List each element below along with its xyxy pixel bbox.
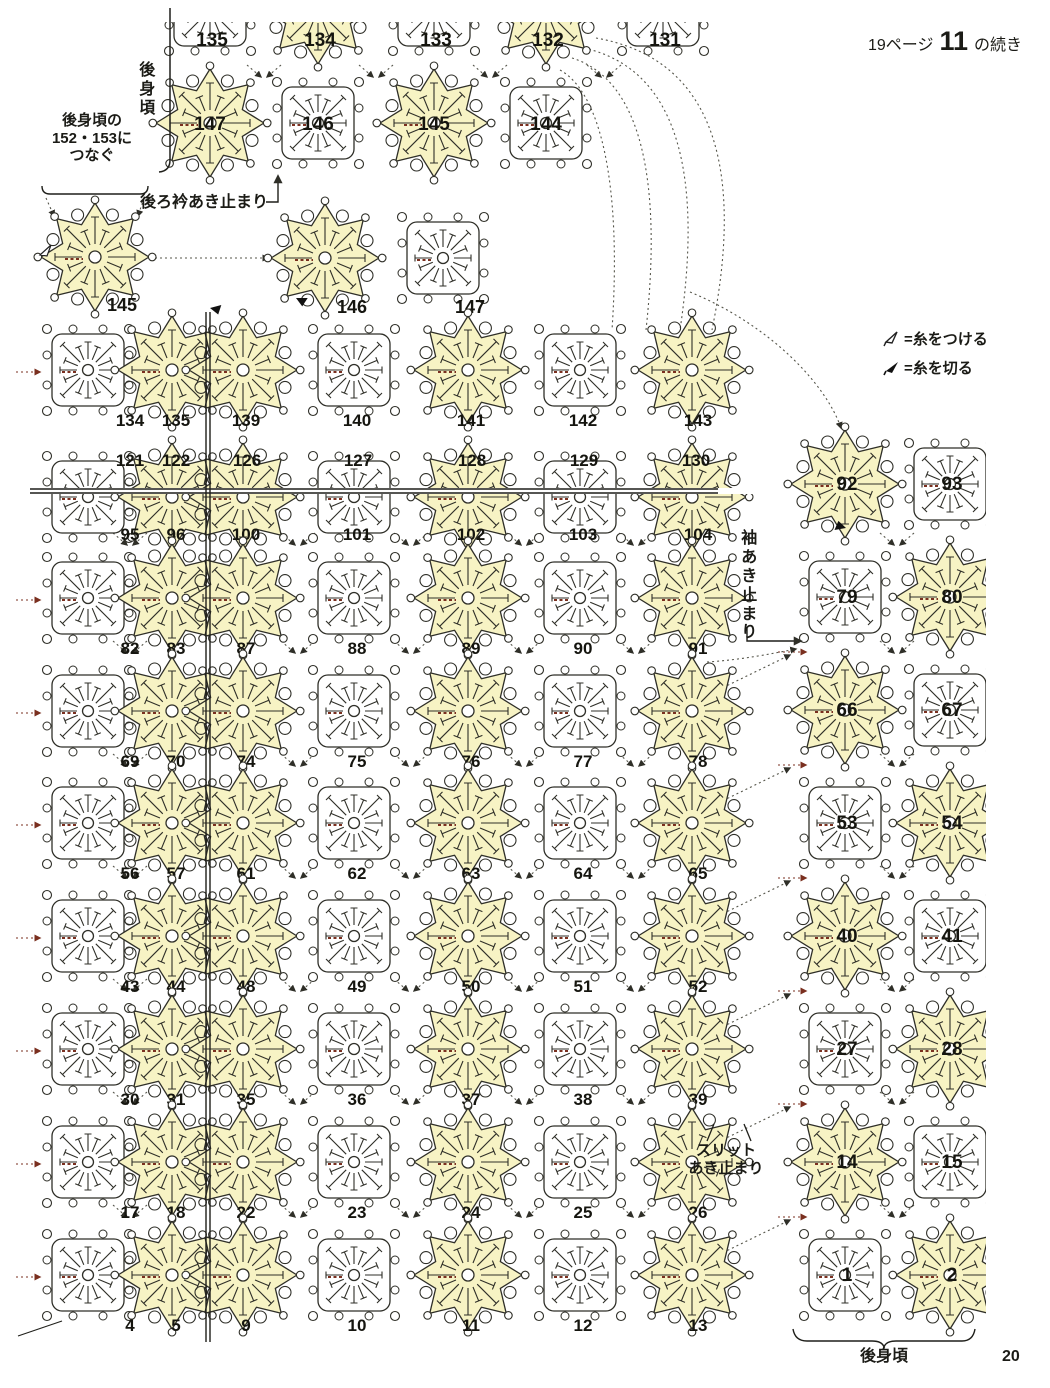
motif-number: 62	[348, 864, 367, 883]
crochet-motif	[309, 325, 400, 416]
crochet-motif	[535, 553, 626, 644]
motif-row: 45910111213	[43, 1214, 754, 1336]
header-page-ref: 19ページ	[868, 31, 933, 55]
motif-number: 133	[420, 30, 452, 51]
motif-number: 75	[348, 752, 367, 771]
motif-row: 43444849505152	[43, 875, 754, 997]
crochet-motif	[398, 213, 489, 304]
crochet-motif	[535, 891, 626, 982]
motif-number: 122	[162, 451, 190, 470]
header-suffix: の続き	[974, 31, 1022, 55]
motif-row: 17182223242526	[43, 1101, 754, 1223]
motif-number: 23	[348, 1203, 367, 1222]
motif-number: 30	[121, 1090, 140, 1109]
motif-number: 129	[570, 451, 598, 470]
motif-number: 64	[574, 864, 593, 883]
motif-number: 51	[574, 977, 593, 996]
motif-number: 27	[836, 1039, 857, 1060]
motif-number: 135	[162, 411, 190, 430]
legend-attach-label: =糸をつける	[904, 328, 988, 349]
motif-number: 134	[116, 411, 145, 430]
crochet-motif	[309, 891, 400, 982]
motif-number: 5	[171, 1316, 180, 1335]
motif-number: 146	[337, 297, 367, 317]
top-row-full: 147146145144	[149, 62, 592, 184]
crochet-motif	[309, 666, 400, 757]
page-header: 19ページ 11 の続き	[868, 26, 1038, 57]
motif-number: 121	[116, 451, 144, 470]
page-number: 20	[1002, 1348, 1020, 1366]
legend-cut-label: =糸を切る	[904, 357, 973, 378]
motif-number: 38	[574, 1090, 593, 1109]
motif-number: 53	[836, 813, 857, 834]
cut-thread-icon	[882, 359, 900, 376]
crochet-motif	[535, 1117, 626, 1208]
motif-number: 92	[836, 474, 857, 495]
motif-number: 135	[196, 30, 228, 51]
motif-number: 25	[574, 1203, 593, 1222]
motif-number: 131	[649, 30, 681, 51]
motif-number: 140	[343, 411, 371, 430]
motif-number: 132	[532, 30, 564, 51]
crochet-motif	[264, 197, 386, 319]
motif-number: 93	[941, 474, 962, 495]
legend: =糸をつける =糸を切る	[882, 328, 988, 386]
motif-number: 141	[457, 411, 485, 430]
legend-attach-row: =糸をつける	[882, 328, 988, 349]
motif-number: 40	[836, 926, 857, 947]
motif-number: 143	[684, 411, 712, 430]
motif-number: 2	[947, 1265, 958, 1286]
motif-number: 17	[121, 1203, 140, 1222]
motif-number: 139	[232, 411, 260, 430]
motif-number: 128	[458, 451, 486, 470]
pattern-page: 1351341331321311471461451441451461471341…	[0, 0, 1050, 1388]
crochet-motif	[535, 1230, 626, 1321]
motif-number: 95	[121, 525, 140, 544]
top-row-clipped: 135134133132131	[165, 0, 709, 71]
motif-number: 142	[569, 411, 597, 430]
motif-number: 103	[569, 525, 597, 544]
crochet-motif	[34, 196, 156, 318]
motif-number: 15	[941, 1152, 963, 1173]
motif-number: 144	[530, 114, 562, 135]
motif-number: 88	[348, 639, 367, 658]
crochet-motif	[309, 1230, 400, 1321]
crochet-motif	[309, 1004, 400, 1095]
motif-number: 101	[343, 525, 371, 544]
motif-number: 49	[348, 977, 367, 996]
motif-number: 43	[121, 977, 140, 996]
motif-number: 80	[941, 587, 962, 608]
motif-number: 77	[574, 752, 593, 771]
label-back-body-top: 後身頃	[138, 62, 156, 119]
motif-number: 56	[121, 864, 140, 883]
motif-row: 82838788899091	[43, 537, 754, 659]
motif-row: 30313536373839	[43, 988, 754, 1110]
motif-row: 134135139140141142143	[43, 309, 754, 431]
label-connect-note: 後身頃の 152・153に つなぐ	[32, 112, 152, 165]
attach-thread-icon	[882, 330, 900, 347]
motif-number: 127	[344, 451, 372, 470]
motif-number: 14	[836, 1152, 858, 1173]
motif-number: 54	[941, 813, 963, 834]
motif-number: 147	[194, 114, 226, 135]
motif-number: 9	[241, 1316, 250, 1335]
motif-number: 4	[125, 1316, 135, 1335]
motif-number: 90	[574, 639, 593, 658]
motif-number: 146	[302, 114, 334, 135]
motif-number: 67	[941, 700, 962, 721]
crochet-motif	[309, 1117, 400, 1208]
label-sleeve-stop: 袖あき止まり	[740, 530, 758, 643]
motif-number: 69	[121, 752, 140, 771]
motif-number: 1	[842, 1265, 853, 1286]
label-slit-stop: スリット あき止まり	[678, 1142, 774, 1177]
motif-number: 82	[121, 639, 140, 658]
crochet-motif	[535, 778, 626, 869]
crochet-motif	[309, 778, 400, 869]
motif-number: 145	[107, 295, 137, 315]
legend-cut-row: =糸を切る	[882, 357, 988, 378]
motif-number: 28	[941, 1039, 962, 1060]
header-pattern-number: 11	[939, 26, 968, 57]
crochet-motif	[535, 325, 626, 416]
crochet-motif	[309, 553, 400, 644]
motif-number: 10	[348, 1316, 367, 1335]
right-column: 929379806667535440412728141512	[784, 423, 1011, 1336]
motif-number: 79	[836, 587, 857, 608]
motif-number: 66	[836, 700, 857, 721]
label-back-collar-stop: 後ろ衿あき止まり	[140, 194, 268, 213]
motif-number: 126	[233, 451, 261, 470]
crochet-motif	[535, 1004, 626, 1095]
motif-number: 36	[348, 1090, 367, 1109]
label-back-body-bottom: 後身頃	[828, 1348, 940, 1367]
motif-number: 134	[304, 30, 336, 51]
cut-thread-icon	[210, 302, 225, 317]
motif-number: 11	[462, 1316, 480, 1335]
motif-number: 145	[418, 114, 450, 135]
motif-number: 41	[941, 926, 963, 947]
motif-row: 56576162636465	[43, 762, 754, 884]
motif-number: 130	[682, 451, 710, 470]
motif-number: 13	[689, 1316, 708, 1335]
motif-number: 12	[574, 1316, 593, 1335]
motif-row: 69707475767778	[43, 650, 754, 772]
crochet-motif	[535, 666, 626, 757]
